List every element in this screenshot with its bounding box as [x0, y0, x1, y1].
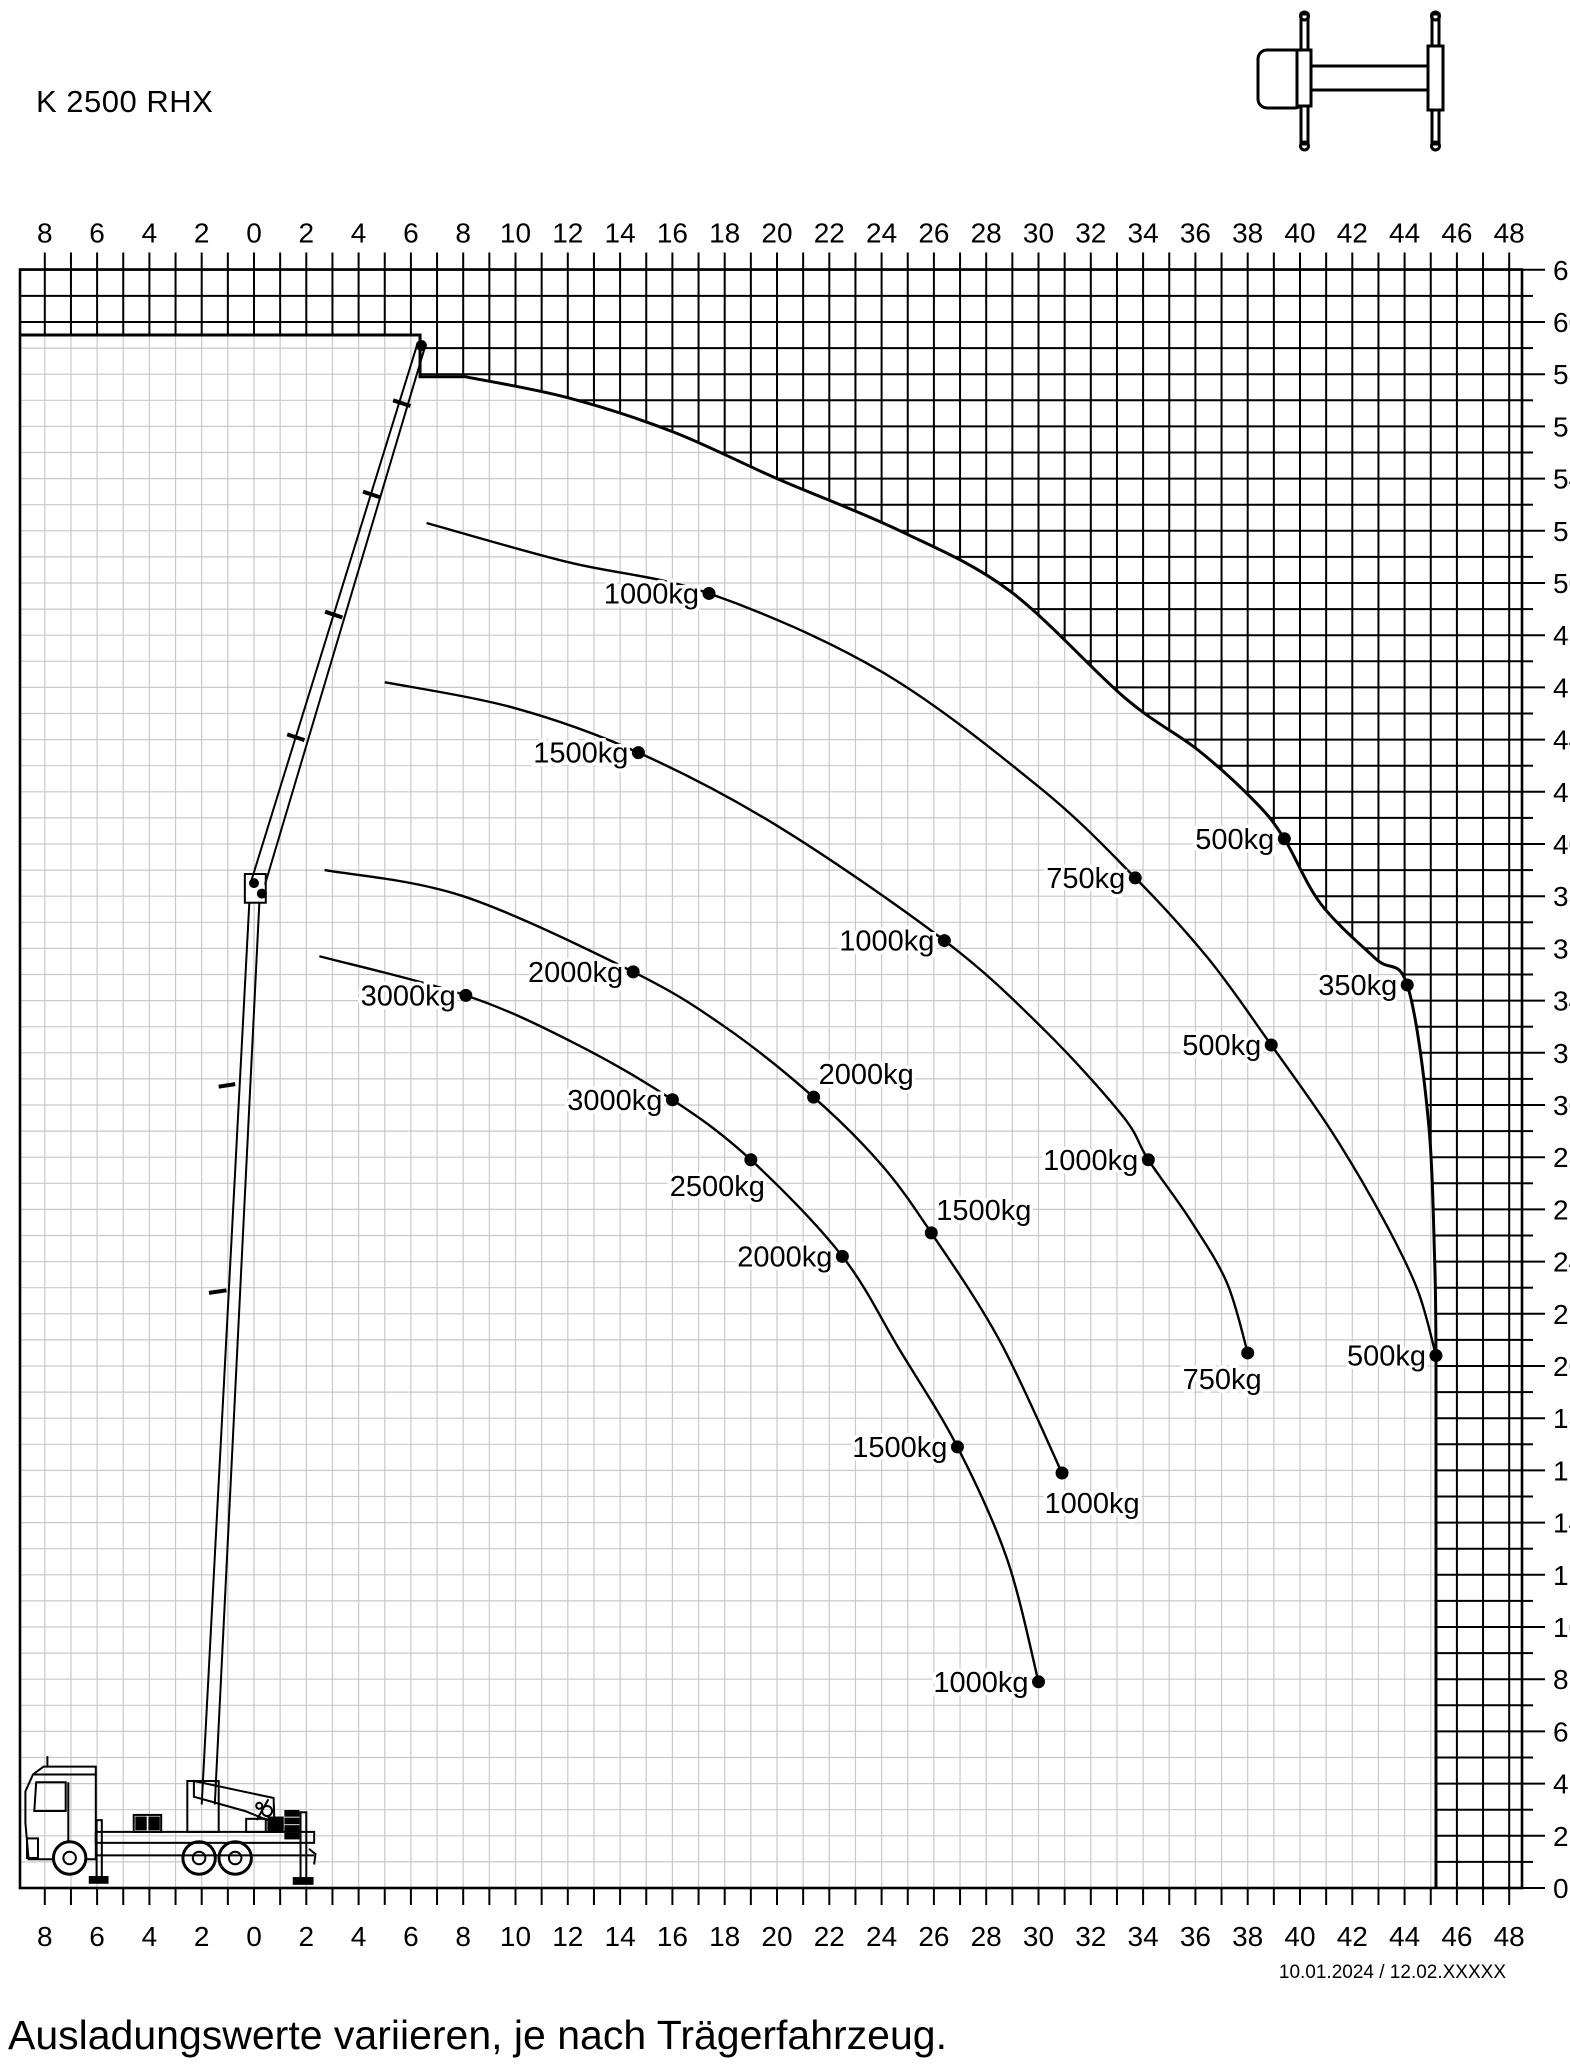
y-tick-label: 12	[1553, 1560, 1570, 1591]
capacity-point	[1142, 1153, 1155, 1166]
x-tick-label-top: 0	[246, 218, 262, 249]
x-tick-label-bottom: 0	[246, 1921, 262, 1952]
capacity-label: 3000kg	[361, 980, 456, 1012]
capacity-label: 1000kg	[1044, 1488, 1139, 1520]
y-tick-label: 8	[1553, 1664, 1569, 1695]
x-tick-label-top: 8	[37, 218, 53, 249]
capacity-point	[1241, 1346, 1254, 1359]
x-tick-label-bottom: 10	[500, 1921, 531, 1952]
capacity-point	[666, 1093, 679, 1106]
x-tick-label-bottom: 44	[1389, 1921, 1420, 1952]
capacity-point	[1265, 1038, 1278, 1051]
y-tick-label: 56	[1553, 411, 1570, 442]
x-tick-label-bottom: 18	[709, 1921, 740, 1952]
footer-note: Ausladungswerte variieren, je nach Träge…	[8, 2012, 947, 2059]
capacity-label: 2000kg	[528, 957, 623, 989]
x-tick-label-bottom: 4	[142, 1921, 158, 1952]
capacity-label: 2500kg	[670, 1171, 765, 1203]
y-tick-label: 42	[1553, 777, 1570, 808]
x-tick-label-top: 4	[142, 218, 158, 249]
x-tick-label-top: 42	[1337, 218, 1368, 249]
x-tick-label-bottom: 8	[455, 1921, 471, 1952]
y-tick-label: 4	[1553, 1769, 1569, 1800]
x-tick-label-bottom: 2	[299, 1921, 315, 1952]
x-tick-label-bottom: 26	[918, 1921, 949, 1952]
x-tick-label-bottom: 20	[761, 1921, 792, 1952]
y-tick-label: 46	[1553, 672, 1570, 703]
capacity-point	[1056, 1467, 1069, 1480]
x-tick-label-top: 10	[500, 218, 531, 249]
load-chart-page: K 2500 RHX 88664422002244668810101212141…	[0, 0, 1570, 2067]
capacity-label: 1000kg	[839, 926, 934, 958]
x-tick-label-top: 8	[455, 218, 471, 249]
capacity-point	[1278, 832, 1291, 845]
y-tick-label: 10	[1553, 1612, 1570, 1643]
x-tick-label-bottom: 38	[1232, 1921, 1263, 1952]
x-tick-label-bottom: 28	[971, 1921, 1002, 1952]
x-tick-label-bottom: 34	[1128, 1921, 1159, 1952]
x-tick-label-top: 30	[1023, 218, 1054, 249]
capacity-label: 1500kg	[852, 1432, 947, 1464]
capacity-label: 1000kg	[604, 578, 699, 610]
capacity-label: 1500kg	[936, 1195, 1031, 1227]
x-tick-label-top: 40	[1284, 218, 1315, 249]
capacity-point	[1032, 1675, 1045, 1688]
y-tick-label: 30	[1553, 1090, 1570, 1121]
x-tick-label-bottom: 42	[1337, 1921, 1368, 1952]
x-tick-label-top: 12	[552, 218, 583, 249]
y-tick-label: 60	[1553, 307, 1570, 338]
y-tick-label: 50	[1553, 568, 1570, 599]
y-tick-label: 54	[1553, 464, 1570, 495]
capacity-point	[807, 1091, 820, 1104]
x-tick-label-bottom: 22	[814, 1921, 845, 1952]
capacity-label: 3000kg	[567, 1085, 662, 1117]
x-tick-label-bottom: 8	[37, 1921, 53, 1952]
y-tick-label: 48	[1553, 620, 1570, 651]
y-tick-label: 32	[1553, 1038, 1570, 1069]
y-tick-label: 18	[1553, 1403, 1570, 1434]
capacity-point	[938, 934, 951, 947]
capacity-point	[744, 1153, 757, 1166]
capacity-label: 750kg	[1046, 863, 1125, 895]
revision-date: 10.01.2024 / 12.02.XXXXX	[1279, 1962, 1506, 1984]
y-tick-label: 20	[1553, 1351, 1570, 1382]
x-tick-label-top: 38	[1232, 218, 1263, 249]
capacity-point	[1401, 978, 1414, 991]
working-area	[20, 335, 1436, 1888]
x-tick-label-top: 22	[814, 218, 845, 249]
x-tick-label-bottom: 40	[1284, 1921, 1315, 1952]
x-tick-label-top: 2	[194, 218, 210, 249]
x-tick-label-bottom: 6	[403, 1921, 419, 1952]
x-tick-label-top: 34	[1128, 218, 1159, 249]
x-tick-label-top: 6	[89, 218, 105, 249]
y-tick-label: 34	[1553, 986, 1570, 1017]
y-tick-label: 38	[1553, 881, 1570, 912]
capacity-point	[1429, 1349, 1442, 1362]
x-tick-label-top: 14	[605, 218, 636, 249]
x-tick-label-bottom: 16	[657, 1921, 688, 1952]
y-tick-label: 28	[1553, 1142, 1570, 1173]
x-tick-label-top: 2	[299, 218, 315, 249]
x-tick-label-bottom: 12	[552, 1921, 583, 1952]
capacity-point	[459, 989, 472, 1002]
y-tick-label: 6	[1553, 1716, 1569, 1747]
y-tick-label: 44	[1553, 725, 1570, 756]
y-tick-label: 26	[1553, 1194, 1570, 1225]
x-tick-label-bottom: 36	[1180, 1921, 1211, 1952]
y-tick-label: 62	[1553, 255, 1570, 286]
x-tick-label-top: 4	[351, 218, 367, 249]
x-tick-label-bottom: 46	[1441, 1921, 1472, 1952]
x-tick-label-top: 24	[866, 218, 897, 249]
x-tick-label-bottom: 24	[866, 1921, 897, 1952]
capacity-label: 500kg	[1182, 1030, 1261, 1062]
y-tick-label: 0	[1553, 1873, 1569, 1904]
load-diagram: 8866442200224466881010121214141616181820…	[0, 0, 1570, 2067]
capacity-label: 350kg	[1318, 970, 1397, 1002]
y-tick-label: 16	[1553, 1455, 1570, 1486]
y-tick-label: 24	[1553, 1247, 1570, 1278]
x-tick-label-top: 26	[918, 218, 949, 249]
x-tick-label-top: 48	[1494, 218, 1525, 249]
capacity-label: 2000kg	[737, 1241, 832, 1273]
capacity-point	[951, 1440, 964, 1453]
x-tick-label-bottom: 6	[89, 1921, 105, 1952]
capacity-point	[627, 965, 640, 978]
y-tick-label: 14	[1553, 1508, 1570, 1539]
x-tick-label-top: 6	[403, 218, 419, 249]
y-tick-label: 36	[1553, 933, 1570, 964]
y-tick-label: 22	[1553, 1299, 1570, 1330]
capacity-point	[925, 1226, 938, 1239]
capacity-point	[632, 746, 645, 759]
capacity-label: 500kg	[1195, 824, 1274, 856]
x-tick-label-top: 32	[1075, 218, 1106, 249]
x-tick-label-top: 46	[1441, 218, 1472, 249]
x-tick-label-bottom: 4	[351, 1921, 367, 1952]
x-tick-label-top: 36	[1180, 218, 1211, 249]
capacity-label: 500kg	[1347, 1341, 1426, 1373]
x-tick-label-bottom: 30	[1023, 1921, 1054, 1952]
capacity-point	[836, 1250, 849, 1263]
x-tick-label-bottom: 32	[1075, 1921, 1106, 1952]
x-tick-label-bottom: 48	[1494, 1921, 1525, 1952]
y-tick-label: 52	[1553, 516, 1570, 547]
x-tick-label-top: 44	[1389, 218, 1420, 249]
capacity-point	[1129, 871, 1142, 884]
capacity-label: 1000kg	[1043, 1145, 1138, 1177]
capacity-label: 1500kg	[533, 738, 628, 770]
x-tick-label-top: 18	[709, 218, 740, 249]
y-tick-label: 40	[1553, 829, 1570, 860]
x-tick-label-bottom: 2	[194, 1921, 210, 1952]
capacity-label: 750kg	[1183, 1364, 1262, 1396]
y-tick-label: 2	[1553, 1821, 1569, 1852]
capacity-label: 2000kg	[819, 1059, 914, 1091]
y-tick-label: 58	[1553, 359, 1570, 390]
x-tick-label-top: 20	[761, 218, 792, 249]
capacity-point	[703, 587, 716, 600]
x-tick-label-top: 28	[971, 218, 1002, 249]
capacity-label: 1000kg	[933, 1667, 1028, 1699]
x-tick-label-bottom: 14	[605, 1921, 636, 1952]
x-tick-label-top: 16	[657, 218, 688, 249]
